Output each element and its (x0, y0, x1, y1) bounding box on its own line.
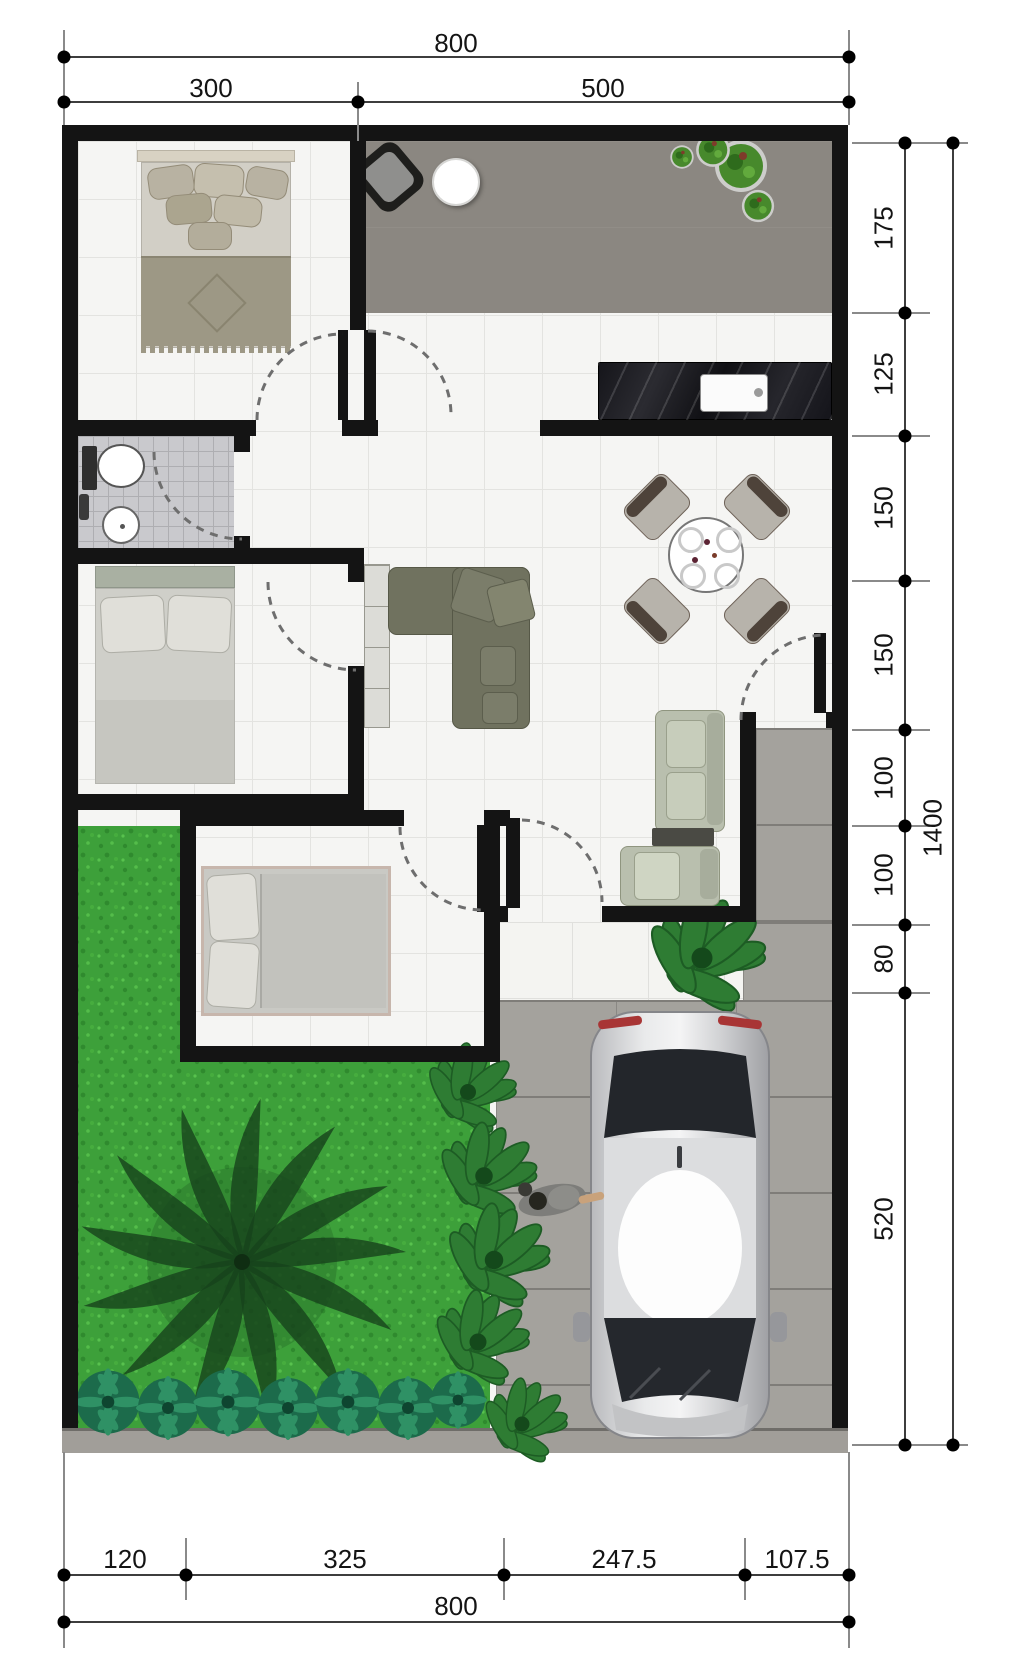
dim-line-top-segments (64, 101, 849, 103)
door-leaf-terrace (364, 330, 376, 420)
dim-bottom-seg-label: 120 (103, 1544, 146, 1575)
bed2-pillow (166, 594, 233, 653)
dim-bottom-seg-label: 107.5 (764, 1544, 829, 1575)
kitchen-faucet-icon (754, 388, 763, 397)
door-leaf-bed1 (338, 330, 348, 420)
door-leaf-bed3 (477, 825, 488, 912)
wall-h-bed1-bath (62, 420, 256, 436)
wall-step-a (743, 712, 755, 728)
dim-dot (58, 51, 71, 64)
wall-bed1-right (350, 141, 366, 330)
toilet-bowl-icon (97, 444, 145, 488)
dim-dot (58, 1569, 71, 1582)
sofa-cushion (666, 720, 706, 768)
dim-dot (947, 1439, 960, 1452)
bed1-fringe (141, 346, 291, 353)
dim-dot (58, 1616, 71, 1629)
wall-bed3-bottom (180, 1046, 500, 1062)
dim-right-seg-label: 150 (869, 486, 900, 529)
dim-line-right-total (952, 143, 954, 1445)
floor-passage-south (743, 922, 832, 1002)
l-sofa-cushion (482, 692, 518, 724)
bed2-pillow (100, 594, 167, 653)
floor-driveway (496, 1000, 832, 1428)
ext-line (357, 82, 359, 141)
dim-bottom-seg-label: 325 (323, 1544, 366, 1575)
door-leaf-main (506, 818, 520, 908)
terrace-table-icon (432, 158, 480, 206)
wall-bed2-bottom (62, 794, 364, 810)
dim-right-seg-label: 150 (869, 633, 900, 676)
bed2-header (95, 566, 235, 588)
floor-side-passage (756, 728, 832, 922)
wall-step-b (826, 712, 832, 728)
dim-line-right-segments (904, 143, 906, 1445)
wall-h-kitchen (540, 420, 832, 436)
wall-top (62, 125, 848, 141)
ext-line (852, 992, 930, 994)
dim-right-total-label: 1400 (918, 799, 949, 857)
ext-line (852, 312, 930, 314)
dim-right-seg-label: 520 (869, 1197, 900, 1240)
wall-front-a (484, 906, 508, 922)
l-sofa-cushion (480, 646, 516, 686)
dim-right-seg-label: 80 (869, 945, 900, 974)
wall-front-b (602, 906, 743, 922)
dim-dot (899, 919, 912, 932)
dim-dot (843, 1616, 856, 1629)
dim-right-seg-label: 175 (869, 206, 900, 249)
floor-plan-canvas: 800 300 500 175 125 150 150 100 100 80 5… (0, 0, 1024, 1669)
dining-table (668, 517, 744, 593)
ext-line (852, 924, 930, 926)
sofa-cushion (634, 852, 680, 900)
bed3-pillow (206, 872, 260, 941)
dim-dot (947, 137, 960, 150)
dim-top-seg-label: 500 (581, 73, 624, 104)
wardrobe (364, 564, 390, 728)
dim-right-seg-label: 125 (869, 352, 900, 395)
dim-dot (498, 1569, 511, 1582)
floor-entry-porch (496, 922, 743, 1002)
wall-h-mid (342, 420, 378, 436)
dim-bottom-total-label: 800 (434, 1591, 477, 1622)
ext-line (852, 729, 930, 731)
bed3-mattress (260, 874, 386, 1008)
wall-bed2-right-a (348, 564, 364, 582)
bed1-headboard (137, 150, 295, 162)
dim-dot (843, 96, 856, 109)
wall-passage-v (740, 712, 756, 922)
dim-dot (899, 987, 912, 1000)
ext-line (852, 435, 930, 437)
ext-line (852, 580, 930, 582)
dim-dot (843, 1569, 856, 1582)
wall-left (62, 125, 78, 1428)
bed1-pillow (165, 192, 213, 226)
wall-bath-right-a (234, 436, 250, 452)
dim-dot (899, 137, 912, 150)
dim-dot (180, 1569, 193, 1582)
dim-dot (899, 575, 912, 588)
bed2-sheet (96, 700, 234, 783)
door-leaf-side (814, 633, 826, 713)
shower-fixture-icon (79, 494, 89, 520)
ext-line (848, 30, 850, 125)
dim-dot (843, 51, 856, 64)
bed3-pillow (206, 940, 260, 1009)
sofa-cushion (666, 772, 706, 820)
dim-dot (739, 1569, 752, 1582)
bed1-blanket (141, 256, 291, 346)
coffee-table (652, 828, 714, 846)
dim-dot (899, 307, 912, 320)
dim-top-total-label: 800 (434, 28, 477, 59)
dim-dot (899, 820, 912, 833)
dim-dot (899, 1439, 912, 1452)
bath-sink-icon (102, 506, 140, 544)
dim-right-seg-label: 100 (869, 756, 900, 799)
dim-top-seg-label: 300 (189, 73, 232, 104)
sidewalk-strip (62, 1428, 848, 1453)
dim-dot (352, 96, 365, 109)
dim-dot (899, 724, 912, 737)
dim-bottom-seg-label: 247.5 (591, 1544, 656, 1575)
ext-line (63, 30, 65, 125)
wall-right (832, 125, 848, 1428)
wall-bed3-top (180, 810, 404, 826)
dim-dot (899, 430, 912, 443)
bed1-pillow (188, 222, 232, 250)
dim-right-seg-label: 100 (869, 853, 900, 896)
wall-bath-bottom (62, 548, 364, 564)
wall-bed2-right-b (348, 666, 364, 794)
toilet-tank (82, 446, 97, 490)
wall-bed3-left (180, 826, 196, 1062)
dim-dot (58, 96, 71, 109)
